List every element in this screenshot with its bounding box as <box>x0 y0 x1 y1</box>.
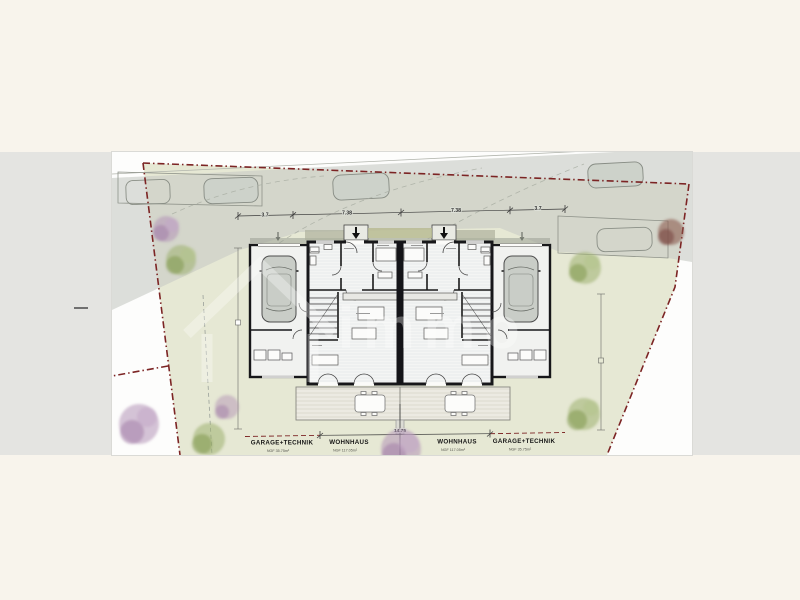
site-plan-image: 3.7 7.38 7.38 3.7 immo <box>112 152 692 455</box>
area-garage-left: NGF 35.75m² <box>267 449 290 453</box>
stray-mark <box>74 307 88 309</box>
image-strip-background: 3.7 7.38 7.38 3.7 immo <box>0 152 800 455</box>
car <box>332 173 389 201</box>
dim-7-38-left: 7.38 <box>342 211 352 217</box>
tree-green <box>569 252 601 284</box>
car <box>204 177 259 204</box>
label-wohnhaus-right: WOHNHAUS <box>437 439 477 446</box>
tree-green <box>166 245 196 275</box>
tree-purple <box>153 216 179 242</box>
label-wohnhaus-left: WOHNHAUS <box>329 439 369 446</box>
label-garage-technik-right: GARAGE+TECHNIK <box>493 438 556 445</box>
tree-purple <box>215 395 239 419</box>
dim-7-38-right: 7.38 <box>451 208 461 214</box>
entrance-canopy <box>368 228 432 238</box>
car <box>587 162 643 189</box>
page-background: { "page": { "background_color": "#f8f4ec… <box>0 0 800 600</box>
area-garage-right: NGF 35.75m² <box>509 448 532 452</box>
area-wohnhaus-right: NGF 117.05m² <box>441 448 466 452</box>
watermark-text: immo <box>338 296 529 361</box>
dim-3-7-left: 3.7 <box>261 213 268 219</box>
dim-3-7-right: 3.7 <box>534 206 541 212</box>
area-wohnhaus-left: NGF 117.05m² <box>333 449 358 453</box>
tree-purple <box>119 404 159 444</box>
tree-darkred <box>658 219 684 245</box>
site-plan-drawing: 3.7 7.38 7.38 3.7 immo <box>112 152 692 455</box>
label-garage-technik-left: GARAGE+TECHNIK <box>251 440 314 447</box>
